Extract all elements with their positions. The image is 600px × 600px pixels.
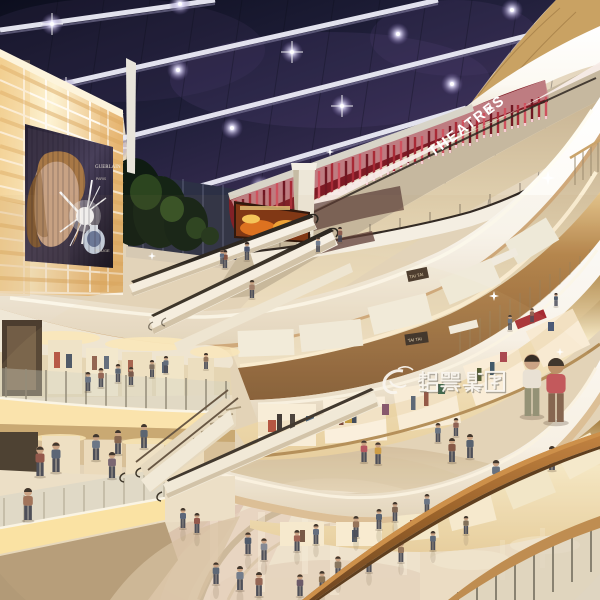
svg-text:GUERLAIN: GUERLAIN xyxy=(95,165,121,170)
